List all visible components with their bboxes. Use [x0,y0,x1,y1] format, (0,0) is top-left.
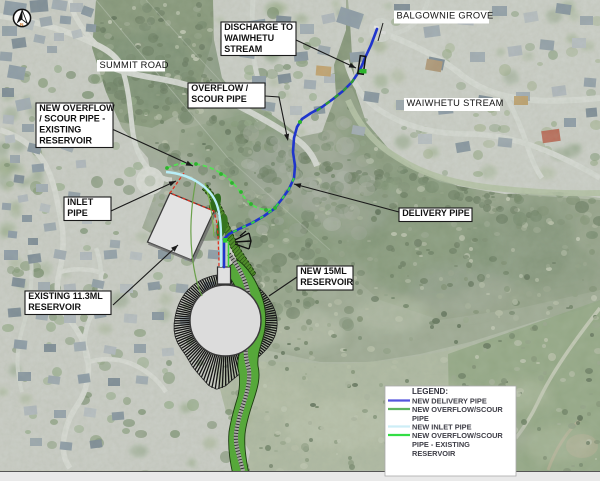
svg-text:NEW OVERFLOW/SCOUR: NEW OVERFLOW/SCOUR [412,431,503,440]
svg-text:SUMMIT ROAD: SUMMIT ROAD [100,60,169,70]
svg-text:DISCHARGE TO: DISCHARGE TO [224,22,293,32]
svg-text:WAIWHETU: WAIWHETU [224,33,274,43]
svg-text:SCOUR PIPE: SCOUR PIPE [191,94,247,104]
svg-text:INLET: INLET [67,197,94,207]
svg-text:PIPE: PIPE [67,208,88,218]
svg-text:RESERVOIR: RESERVOIR [300,277,353,287]
svg-text:NEW 15ML: NEW 15ML [300,266,347,276]
svg-text:RESERVOIR: RESERVOIR [28,302,81,312]
svg-text:BALGOWNIE GROVE: BALGOWNIE GROVE [397,11,494,21]
svg-text:OVERFLOW /: OVERFLOW / [191,83,248,93]
svg-text:RESERVOIR: RESERVOIR [412,449,456,458]
svg-text:WAIWHETU STREAM: WAIWHETU STREAM [407,98,504,108]
svg-text:/ SCOUR PIPE -: / SCOUR PIPE - [39,114,105,124]
svg-text:LEGEND:: LEGEND: [412,387,448,396]
svg-text:DELIVERY PIPE: DELIVERY PIPE [402,208,470,218]
svg-text:RESERVOIR: RESERVOIR [39,135,92,145]
svg-text:N: N [20,22,24,28]
svg-text:PIPE - EXISTING: PIPE - EXISTING [412,440,470,449]
svg-text:EXISTING 11.3ML: EXISTING 11.3ML [28,291,103,301]
svg-text:NEW OVERFLOW/SCOUR: NEW OVERFLOW/SCOUR [412,405,503,414]
svg-text:STREAM: STREAM [224,44,262,54]
svg-text:EXISTING: EXISTING [39,125,81,135]
svg-text:NEW OVERFLOW: NEW OVERFLOW [39,103,115,113]
